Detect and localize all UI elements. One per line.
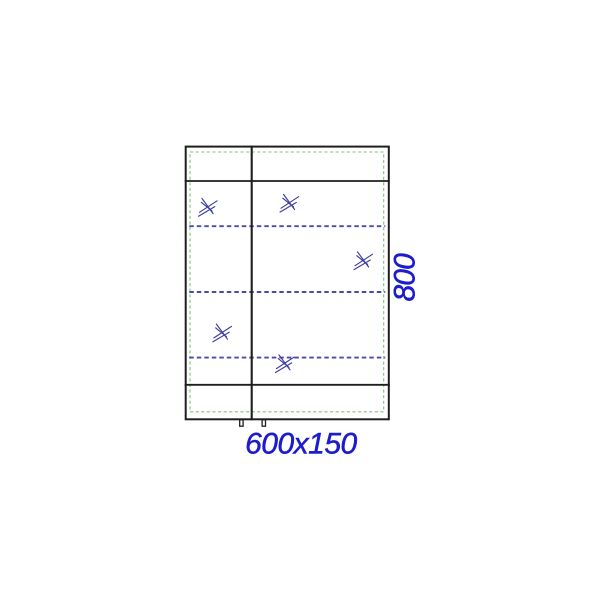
svg-text:800: 800 xyxy=(389,253,422,302)
svg-text:600x150: 600x150 xyxy=(245,428,357,461)
